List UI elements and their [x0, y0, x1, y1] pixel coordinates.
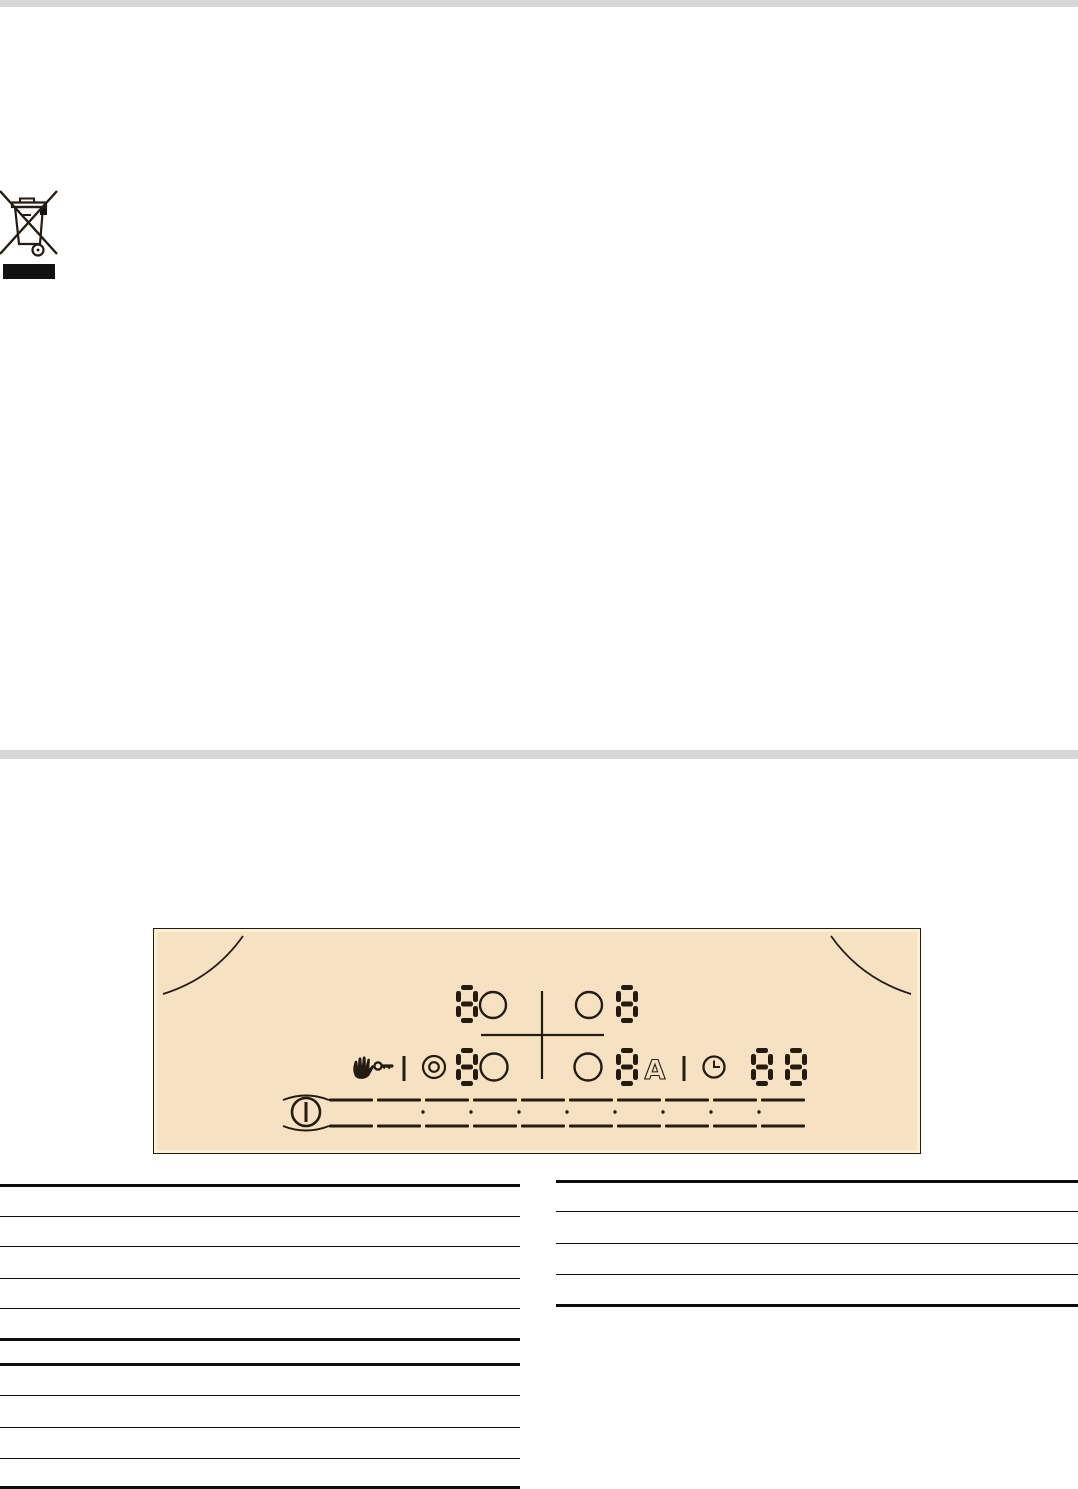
- key-icon: [374, 1062, 393, 1069]
- table-rule-line: [0, 1246, 520, 1247]
- residual-heat-indicator-icon: [423, 1056, 445, 1078]
- clock-timer-icon: [704, 1057, 725, 1078]
- cooking-zone-arc-right: [831, 936, 911, 994]
- slider-dash: [521, 1099, 565, 1102]
- slider-dot: [469, 1110, 472, 1113]
- front-left-power-display: [456, 1048, 478, 1086]
- rear-right-power-display: [616, 985, 638, 1023]
- table-rule-line: [556, 1274, 1078, 1275]
- table-rule-line: [0, 1427, 520, 1428]
- zone-separator-cross: [481, 991, 604, 1079]
- table-rule-line: [556, 1180, 1078, 1183]
- slider-dash: [761, 1099, 805, 1102]
- slider-dash: [665, 1125, 709, 1128]
- slider-dash: [713, 1125, 757, 1128]
- power-slider-track: [329, 1099, 805, 1128]
- table-rule-line: [556, 1304, 1078, 1307]
- slider-dash: [473, 1099, 517, 1102]
- table-rule-line: [0, 1486, 520, 1489]
- cooking-zone-arc-left: [163, 936, 243, 994]
- page-top-rule: [0, 0, 1078, 7]
- power-on-off-icon: [283, 1096, 329, 1131]
- section-divider-rule: [0, 750, 1078, 759]
- slider-dash: [617, 1125, 661, 1128]
- table-rule-line: [0, 1395, 520, 1396]
- rear-right-zone-indicator-circle: [576, 992, 602, 1018]
- rear-left-power-display: [456, 985, 478, 1023]
- weee-symbol: [0, 188, 60, 283]
- slider-dash: [377, 1099, 421, 1102]
- front-right-power-display: [616, 1048, 638, 1086]
- slider-dash: [761, 1125, 805, 1128]
- slider-dot: [661, 1110, 664, 1113]
- slider-dot: [757, 1110, 760, 1113]
- table-rule-line: [0, 1458, 520, 1459]
- table-rule-line: [0, 1278, 520, 1279]
- slider-dot: [613, 1110, 616, 1113]
- table-rule-line: [0, 1216, 520, 1217]
- timer-display-digit-1: [751, 1048, 773, 1086]
- slider-dash: [569, 1099, 613, 1102]
- manual-page: A: [0, 0, 1078, 1489]
- slider-dash: [665, 1099, 709, 1102]
- table-rule-line: [0, 1184, 520, 1187]
- hob-control-panel-figure: A: [153, 928, 921, 1154]
- table-rule-line: [0, 1338, 520, 1341]
- weee-solid-bar: [3, 264, 55, 279]
- slider-dash: [425, 1125, 469, 1128]
- rear-left-zone-indicator-circle: [480, 992, 506, 1018]
- table-rule-line: [556, 1211, 1078, 1212]
- front-right-zone-indicator-circle: [575, 1054, 602, 1081]
- timer-display-digit-2: [785, 1048, 807, 1086]
- slider-dash: [425, 1099, 469, 1102]
- hand-childlock-icon: [353, 1056, 374, 1079]
- table-rule-line: [0, 1308, 520, 1309]
- table-rule-line: [0, 1363, 520, 1366]
- auto-heat-up-letter-a: A: [645, 1055, 666, 1086]
- slider-dot: [517, 1110, 520, 1113]
- slider-dash: [521, 1125, 565, 1128]
- slider-dash: [329, 1125, 373, 1128]
- slider-dash: [329, 1099, 373, 1102]
- slider-dash: [569, 1125, 613, 1128]
- slider-dot: [421, 1110, 424, 1113]
- front-left-zone-indicator-circle: [481, 1054, 508, 1081]
- slider-dot: [709, 1110, 712, 1113]
- slider-dot: [565, 1110, 568, 1113]
- slider-dash: [473, 1125, 517, 1128]
- slider-dash: [713, 1099, 757, 1102]
- table-rule-line: [556, 1243, 1078, 1244]
- slider-dash: [617, 1099, 661, 1102]
- slider-dash: [377, 1125, 421, 1128]
